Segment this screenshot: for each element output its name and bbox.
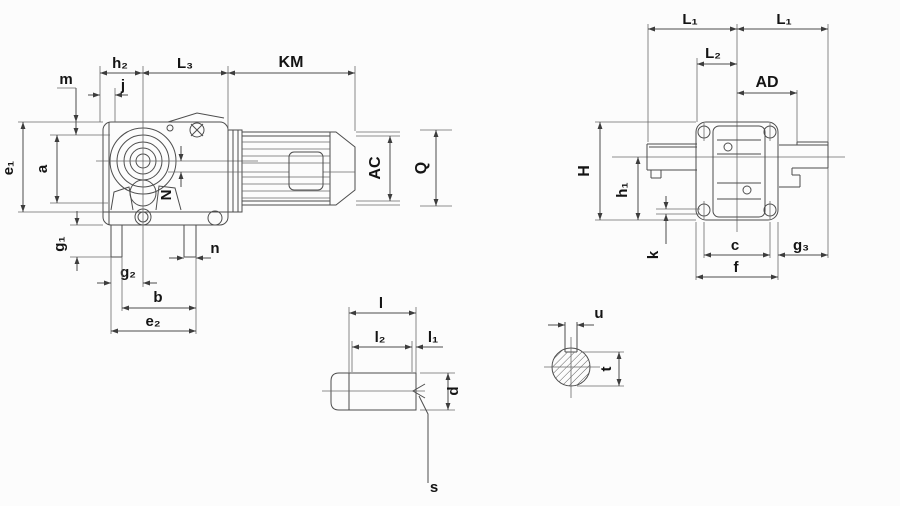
dim-label-d: d (445, 386, 462, 395)
side-view: e₁ a m j h₂ L₃ KM N AC Q (0, 54, 452, 334)
small-bolt-hole (167, 125, 173, 131)
dim-label-n: n (210, 240, 219, 257)
dim-label-L1-right: L₁ (776, 11, 791, 28)
dim-label-g3: g₃ (793, 237, 809, 254)
mounting-studs (111, 225, 196, 257)
dim-label-Q: Q (413, 162, 430, 174)
dim-label-m: m (59, 71, 72, 88)
dim-label-k: k (645, 250, 662, 259)
dim-h1: h₁ (614, 157, 638, 220)
dim-label-L3: L₃ (177, 55, 193, 72)
motor (168, 132, 355, 205)
output-shaft-right (779, 142, 828, 187)
cover-plug-hole (724, 143, 732, 151)
dim-e1: e₁ (0, 122, 103, 212)
front-view-extension-lines (648, 24, 828, 258)
dim-N: N (158, 146, 181, 200)
dim-l1: l₁ (416, 329, 443, 347)
dim-label-l: l (379, 295, 383, 312)
dim-label-t: t (598, 367, 615, 372)
dim-label-g1: g₁ (51, 236, 68, 251)
dim-l2: l₂ (352, 329, 412, 372)
input-shaft-left (647, 144, 697, 178)
cover-plug-hole (743, 186, 751, 194)
dim-label-s: s (430, 479, 438, 496)
dim-e2: e₂ (111, 313, 196, 331)
dim-m: m (57, 71, 76, 135)
dim-label-f: f (734, 259, 740, 276)
dim-L2: L₂ (697, 45, 737, 64)
dim-label-AD: AD (755, 74, 778, 91)
dim-label-h1: h₁ (614, 182, 631, 197)
flange-bolt-hole (208, 211, 222, 225)
dim-label-j: j (120, 77, 125, 94)
dim-AC: AC (367, 136, 390, 201)
motor-flange (228, 130, 242, 212)
dim-s-leader: s (419, 396, 438, 496)
dim-L1-left: L₁ (648, 11, 737, 29)
dim-label-N: N (158, 190, 175, 201)
dim-j: j (88, 66, 128, 122)
dim-n: n (169, 240, 220, 258)
dim-Q: Q (413, 130, 436, 206)
dim-g1: g₁ (51, 211, 111, 271)
dim-label-AC: AC (367, 156, 384, 180)
dim-KM: KM (228, 54, 355, 131)
output-axis-centerlines (96, 66, 258, 287)
dim-a: a (34, 135, 110, 203)
dim-label-b: b (153, 289, 162, 306)
dim-label-L1-left: L₁ (682, 11, 697, 28)
dim-k: k (645, 196, 700, 259)
shaft-detail: l l₂ l₁ d s (322, 295, 462, 496)
drawing-svg: e₁ a m j h₂ L₃ KM N AC Q (0, 0, 900, 506)
dim-label-h2: h₂ (112, 55, 128, 72)
dim-label-g2: g₂ (120, 264, 136, 281)
breather-plug-icon (190, 123, 204, 137)
dim-label-u: u (594, 305, 603, 322)
dim-u: u (548, 305, 604, 325)
dim-label-L2: L₂ (705, 45, 721, 62)
dim-L3: L₃ (142, 55, 228, 130)
dim-label-l1: l₁ (428, 329, 438, 346)
dim-label-e2: e₂ (145, 313, 160, 330)
keyway-section: u t (544, 305, 624, 398)
dim-label-KM: KM (279, 54, 304, 71)
front-view-centerlines (612, 24, 845, 232)
front-view: L₁ L₁ L₂ AD H h₁ k c f g₃ (576, 11, 845, 280)
dim-label-a: a (34, 164, 51, 173)
dim-h2: h₂ (100, 55, 142, 73)
dim-AD: AD (737, 74, 797, 93)
dim-L1-right: L₁ (737, 11, 828, 29)
dim-label-c: c (731, 237, 739, 254)
dim-label-l2: l₂ (375, 329, 386, 346)
dim-label-e1: e₁ (0, 161, 17, 176)
gearmotor-dimension-drawing: e₁ a m j h₂ L₃ KM N AC Q (0, 0, 900, 506)
shaft-geometry (322, 373, 425, 410)
dim-g3: g₃ (778, 237, 828, 255)
dim-H: H (576, 122, 696, 220)
dim-label-H: H (576, 165, 593, 177)
dim-d: d (420, 373, 462, 410)
